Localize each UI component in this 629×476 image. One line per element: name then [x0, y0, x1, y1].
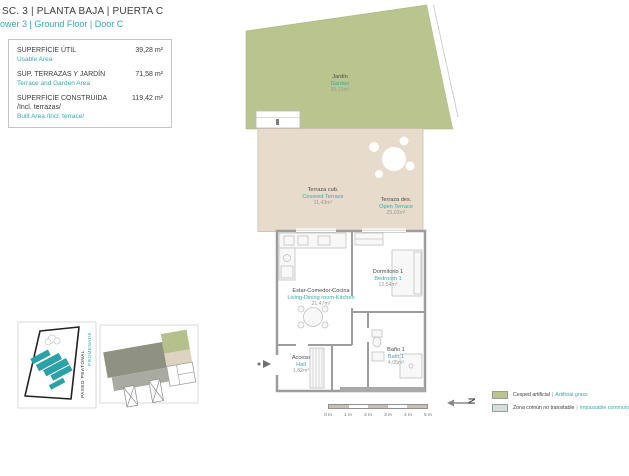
summary-value: 119,42 m²: [132, 95, 163, 104]
street-label: PASEO PEATONAL: [80, 336, 85, 398]
scale-tick: 0 m: [324, 412, 332, 417]
entry-opening: [274, 355, 280, 375]
room-label-covered-terrace: Terraza cub. Covered Terrace 11,43m²: [302, 187, 343, 207]
scale-tick: 3 m: [384, 412, 392, 417]
scale-tick: 4 m: [404, 412, 412, 417]
room-label-garden: Jardín Garden 35,13m²: [330, 74, 349, 94]
summary-row-terrace-garden: SUP. TERRAZAS Y JARDÍN 71,58 m² Terrace …: [17, 71, 163, 88]
dining-table: [304, 308, 323, 327]
page-title: SC. 3 | PLANTA BAJA | PUERTA C: [2, 6, 163, 17]
apartment-interior: [258, 229, 426, 393]
room-label-living: Estar-Comedor-Cocina Living-Dining room-…: [287, 288, 354, 308]
north-letter: N: [466, 398, 476, 405]
summary-value: 71,58 m²: [135, 71, 163, 80]
scale-tick: 1 m: [344, 412, 352, 417]
summary-label: SUP. TERRAZAS Y JARDÍN: [17, 71, 105, 80]
summary-label-en: Built Area /Incl. terrace/: [17, 113, 163, 121]
summary-label-en: Usable Area: [17, 56, 163, 64]
sink: [372, 352, 384, 361]
scale-tick: 2 m: [364, 412, 372, 417]
room-label-bedroom1: Dormitorio 1 Bedroom 1 12,54m²: [373, 269, 403, 289]
entry-arrow-icon: [258, 360, 272, 368]
summary-row-usable: SUPERFICIE ÚTIL 39,28 m² Usable Area: [17, 47, 163, 64]
communal-swatch: [492, 404, 508, 412]
summary-value: 39,28 m²: [135, 47, 163, 56]
summary-label: SUPERFICIE ÚTIL: [17, 47, 76, 56]
toilet: [372, 330, 382, 337]
page-subtitle: ower 3 | Ground Floor | Door C: [0, 19, 123, 29]
legend-item-communal: Zona común no transitable|Impassable com…: [492, 404, 629, 412]
summary-row-built: SUPERFICIE CONSTRUIDA 119,42 m² /Incl. t…: [17, 95, 163, 121]
scale-tick: 5 m: [424, 412, 432, 417]
scale-bar: [328, 404, 428, 409]
summary-label: SUPERFICIE CONSTRUIDA: [17, 95, 107, 104]
street-label-en: PROMENADE: [87, 326, 92, 366]
grass-swatch: [492, 391, 508, 399]
floorplan-page: SC. 3 | PLANTA BAJA | PUERTA C ower 3 | …: [0, 0, 629, 476]
room-label-hall: Acceso Hall 1,82m²: [292, 355, 310, 375]
surface-summary-box: SUPERFICIE ÚTIL 39,28 m² Usable Area SUP…: [8, 39, 172, 128]
garden-area: [246, 4, 458, 129]
legend-item-grass: Cesped artificial|Artificial grass: [492, 391, 629, 399]
key-plan-minimap: [100, 325, 198, 410]
room-label-bath1: Baño 1 Bath 1 4,05m²: [387, 347, 405, 367]
room-label-open-terrace: Terraza des. Open Terrace 25,02m²: [379, 197, 413, 217]
summary-label-en: Terrace and Garden Area: [17, 80, 163, 88]
summary-label-2: /Incl. terrazas/: [17, 104, 163, 113]
legend: Cesped artificial|Artificial grass Zona …: [492, 391, 629, 417]
